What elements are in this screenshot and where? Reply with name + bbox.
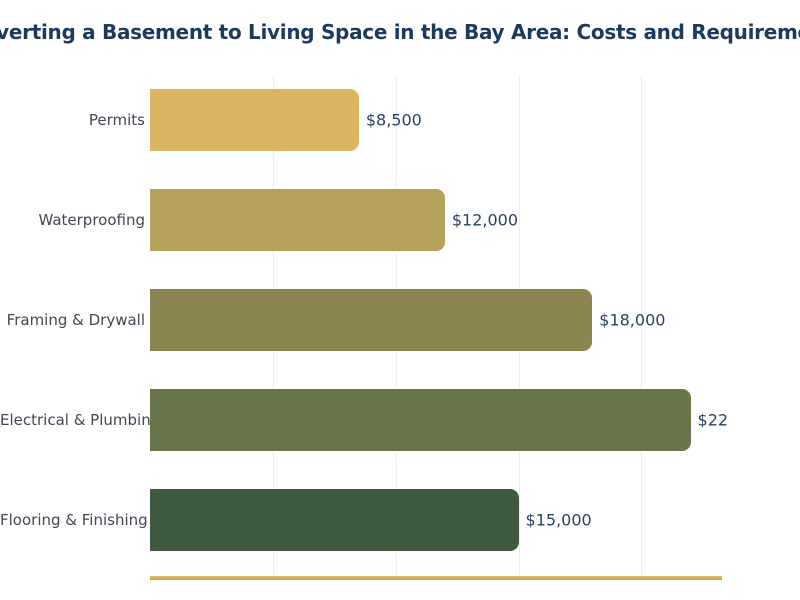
bar <box>150 389 691 451</box>
value-label: $8,500 <box>366 111 422 130</box>
bar <box>150 289 592 351</box>
chart-title: Converting a Basement to Living Space in… <box>0 20 800 44</box>
value-label: $12,000 <box>452 211 518 230</box>
bar <box>150 189 445 251</box>
category-label: Framing & Drywall <box>0 312 145 329</box>
x-axis-line <box>150 576 722 580</box>
value-label: $18,000 <box>599 311 665 330</box>
bar <box>150 89 359 151</box>
category-label: Waterproofing <box>0 212 145 229</box>
category-label: Flooring & Finishing <box>0 512 145 529</box>
category-label: Permits <box>0 112 145 129</box>
category-label: Electrical & Plumbing <box>0 412 145 429</box>
value-label: $22 <box>698 411 729 430</box>
bar-chart: Converting a Basement to Living Space in… <box>0 0 800 600</box>
bar <box>150 489 519 551</box>
value-label: $15,000 <box>526 511 592 530</box>
